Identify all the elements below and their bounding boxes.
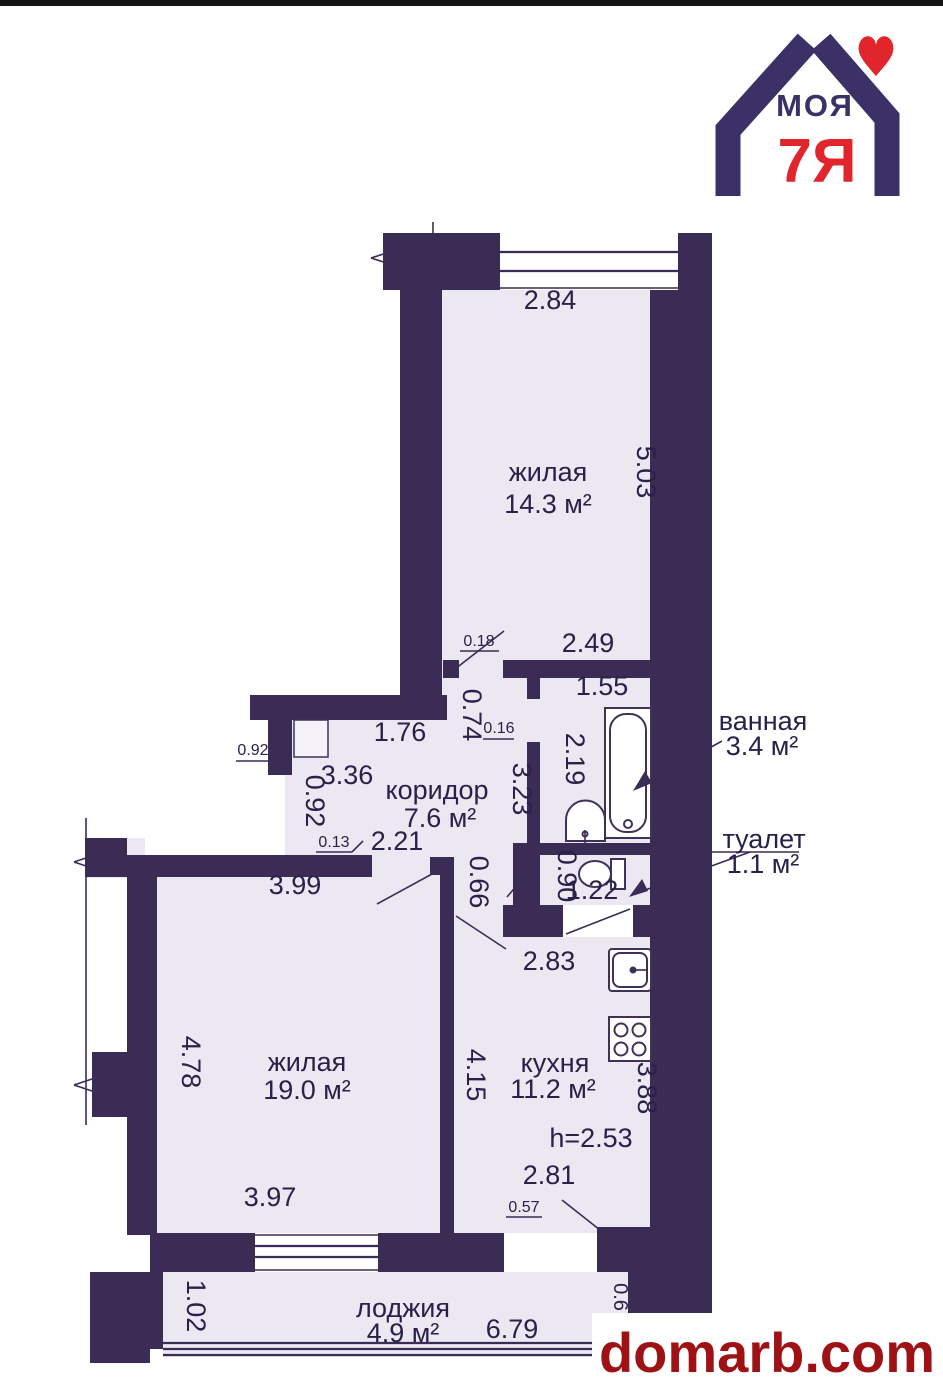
wall-segment — [633, 905, 650, 937]
stove-icon — [609, 1017, 651, 1061]
dim-2-19: 2.19 — [560, 733, 590, 786]
room-label-corridor: коридор — [385, 775, 488, 805]
wall-segment — [527, 677, 540, 699]
dim-0-18: 0.18 — [463, 633, 494, 650]
dim-1-76: 1.76 — [374, 717, 427, 747]
dim-2-81: 2.81 — [523, 1160, 576, 1190]
dim-0-92-v: 0.92 — [300, 775, 330, 828]
dim-height: h=2.53 — [549, 1123, 632, 1153]
door-gap-loggia — [504, 1233, 597, 1272]
dim-3-97: 3.97 — [244, 1182, 297, 1212]
room-area-living1: 14.3 м² — [504, 489, 592, 519]
dim-0-57: 0.57 — [508, 1199, 539, 1216]
dim-3-99: 3.99 — [269, 870, 322, 900]
heart-icon — [859, 36, 894, 76]
watermark-text: domarb.com — [599, 1321, 935, 1384]
closet-icon — [294, 720, 328, 757]
wall-segment — [150, 1272, 163, 1349]
dim-1-02: 1.02 — [181, 1280, 211, 1333]
dim-5-03: 5.03 — [631, 446, 661, 499]
wall-segment — [378, 1233, 504, 1272]
dim-0-92-h: 0.92 — [237, 742, 268, 759]
room-area-kitchen: 11.2 м² — [510, 1074, 596, 1104]
wall-segment — [400, 233, 442, 720]
dim-0-66: 0.66 — [464, 856, 494, 909]
wall-segment — [503, 905, 563, 937]
dim-0-90: 0.90 — [552, 850, 582, 903]
window-living1 — [500, 233, 678, 290]
room-area-corridor: 7.6 м² — [404, 803, 477, 833]
dim-3-88: 3.88 — [632, 1062, 662, 1115]
wall-segment — [443, 660, 459, 678]
dim-3-23: 3.23 — [507, 763, 537, 816]
wall-pilaster — [92, 1052, 127, 1117]
wall-segment — [440, 872, 454, 1235]
room-area-living2: 19.0 м² — [263, 1075, 351, 1105]
dim-0-13: 0.13 — [318, 834, 349, 851]
dim-0-6: 0.6 — [609, 1283, 631, 1311]
wall-segment — [150, 1233, 255, 1272]
dim-1-55: 1.55 — [576, 671, 629, 701]
room-area-loggia: 4.9 м² — [367, 1318, 440, 1348]
dim-2-83: 2.83 — [523, 946, 576, 976]
watermark: domarb.com — [592, 1313, 943, 1395]
room-area-bathroom: 3.4 м² — [726, 731, 799, 761]
dim-6-79: 6.79 — [486, 1314, 539, 1344]
wall-segment — [268, 720, 292, 775]
dim-0-16: 0.16 — [483, 720, 514, 737]
wall-segment — [127, 877, 157, 1235]
room-area-toilet: 1.1 м² — [727, 849, 800, 879]
floor-plan-page: 2.84 2.49 1.55 1.76 3.36 2.21 3.99 1.22 … — [0, 0, 943, 1395]
room-label-living1: жилая — [509, 457, 588, 487]
dim-0-74: 0.74 — [457, 689, 487, 742]
dim-2-49: 2.49 — [562, 628, 615, 658]
window-living2 — [255, 1233, 378, 1272]
dim-4-15: 4.15 — [461, 1049, 491, 1102]
floor-plan-canvas: 2.84 2.49 1.55 1.76 3.36 2.21 3.99 1.22 … — [0, 0, 943, 1395]
wall-segment — [90, 1272, 150, 1363]
dim-4-78: 4.78 — [176, 1036, 206, 1089]
room-label-living2: жилая — [268, 1047, 347, 1077]
logo-word: МОЯ — [776, 88, 854, 123]
agency-logo: МОЯ 7Я — [728, 36, 893, 196]
dim-2-84: 2.84 — [524, 285, 577, 315]
wall-segment — [85, 855, 372, 877]
logo-number: 7Я — [777, 127, 856, 196]
page-top-border — [0, 0, 943, 6]
